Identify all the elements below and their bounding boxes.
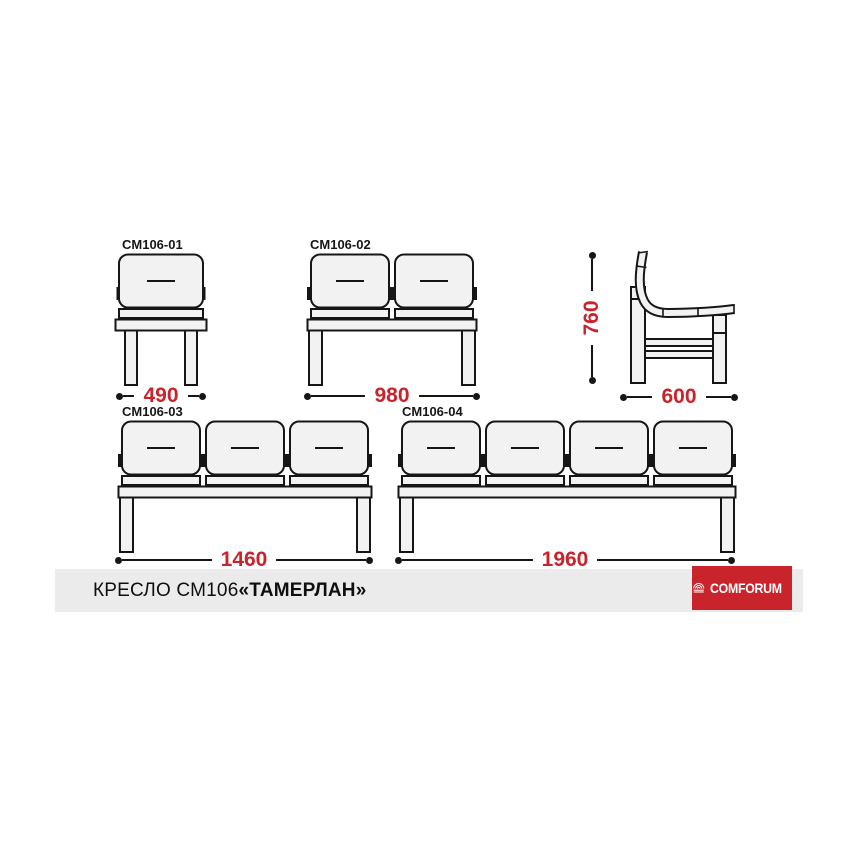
product-title-regular: КРЕСЛО СМ106 [93,580,238,602]
chair-side-view [618,249,740,385]
bench-leg [357,497,370,552]
dimension-depth-side-view: 600 [620,389,738,405]
product-title-emphasis: «ТАМЕРЛАН» [238,580,366,602]
product-title: КРЕСЛО СМ106 «ТАМЕРЛАН» [93,569,366,612]
dimension-dot [395,557,402,564]
dimension-line [188,395,199,397]
dimension-width-cm106-03: 1460 [115,552,373,568]
dimension-dot [731,394,738,401]
module-label-cm106-04: CM106-04 [402,405,463,419]
leg-stretcher [645,339,713,346]
seat-cushion [395,309,473,318]
dimension-line [311,395,365,397]
module-label-cm106-02: CM106-02 [310,238,371,252]
module-label-cm106-01: CM106-01 [122,238,183,252]
chair-leg [185,330,197,385]
dimension-value: 600 [652,389,705,405]
dimension-dot [304,393,311,400]
seat-rail [308,320,477,331]
bench-front-view-4-seat [397,420,737,554]
dimension-value: 980 [365,388,418,404]
comforum-arch-icon [692,578,705,598]
dimension-line [597,559,728,561]
dimension-width-cm106-01: 490 [116,388,206,404]
seat-cushion [570,476,648,485]
comforum-logo: COMFORUM [692,566,792,610]
dimension-line [276,559,366,561]
module-label-cm106-03: CM106-03 [122,405,183,419]
dimension-line [706,396,731,398]
dimension-dot [116,393,123,400]
seat-cushion [486,476,564,485]
dimension-value: 490 [134,388,187,404]
bench-leg [721,497,734,552]
seat-shell [640,252,734,313]
dimension-line [627,396,652,398]
dimension-dot [115,557,122,564]
bench-leg [462,330,475,385]
seat-rail [399,487,736,498]
dimension-value: 760 [584,291,600,344]
seat-cushion [119,309,203,318]
dimension-dot [589,377,596,384]
dimension-line [419,395,473,397]
dimension-width-cm106-02: 980 [304,388,480,404]
dimension-value: 1960 [533,552,598,568]
dimension-line [402,559,533,561]
footer-title-bar: КРЕСЛО СМ106 «ТАМЕРЛАН» COMFORUM [55,569,803,612]
chair-front-view-1-seat [114,253,208,387]
bench-leg [120,497,133,552]
dimension-value: 1460 [212,552,277,568]
dimension-line [122,559,212,561]
seat-cushion [290,476,368,485]
bench-leg [400,497,413,552]
dimension-dot [620,394,627,401]
leg-stretcher [645,351,713,358]
comforum-logo-text: COMFORUM [710,580,782,596]
dimension-width-cm106-04: 1960 [395,552,735,568]
dimension-dot [199,393,206,400]
bench-front-view-2-seat [306,253,478,387]
seat-cushion [654,476,732,485]
dimension-height-side-view: 760 [584,252,600,384]
seat-cushion [122,476,200,485]
dimension-line [123,395,134,397]
seat-rail [119,487,372,498]
bench-front-view-3-seat [117,420,373,554]
seat-cushion [311,309,389,318]
front-leg [713,315,726,383]
seat-shell-outline [640,252,734,313]
seat-rail [116,320,207,331]
dimension-line [591,259,593,291]
dimension-dot [366,557,373,564]
dimension-line [591,345,593,377]
seat-cushion [206,476,284,485]
seat-cushion [402,476,480,485]
dimension-dot [589,252,596,259]
bench-leg [309,330,322,385]
dimension-dot [728,557,735,564]
dimension-dot [473,393,480,400]
chair-leg [125,330,137,385]
